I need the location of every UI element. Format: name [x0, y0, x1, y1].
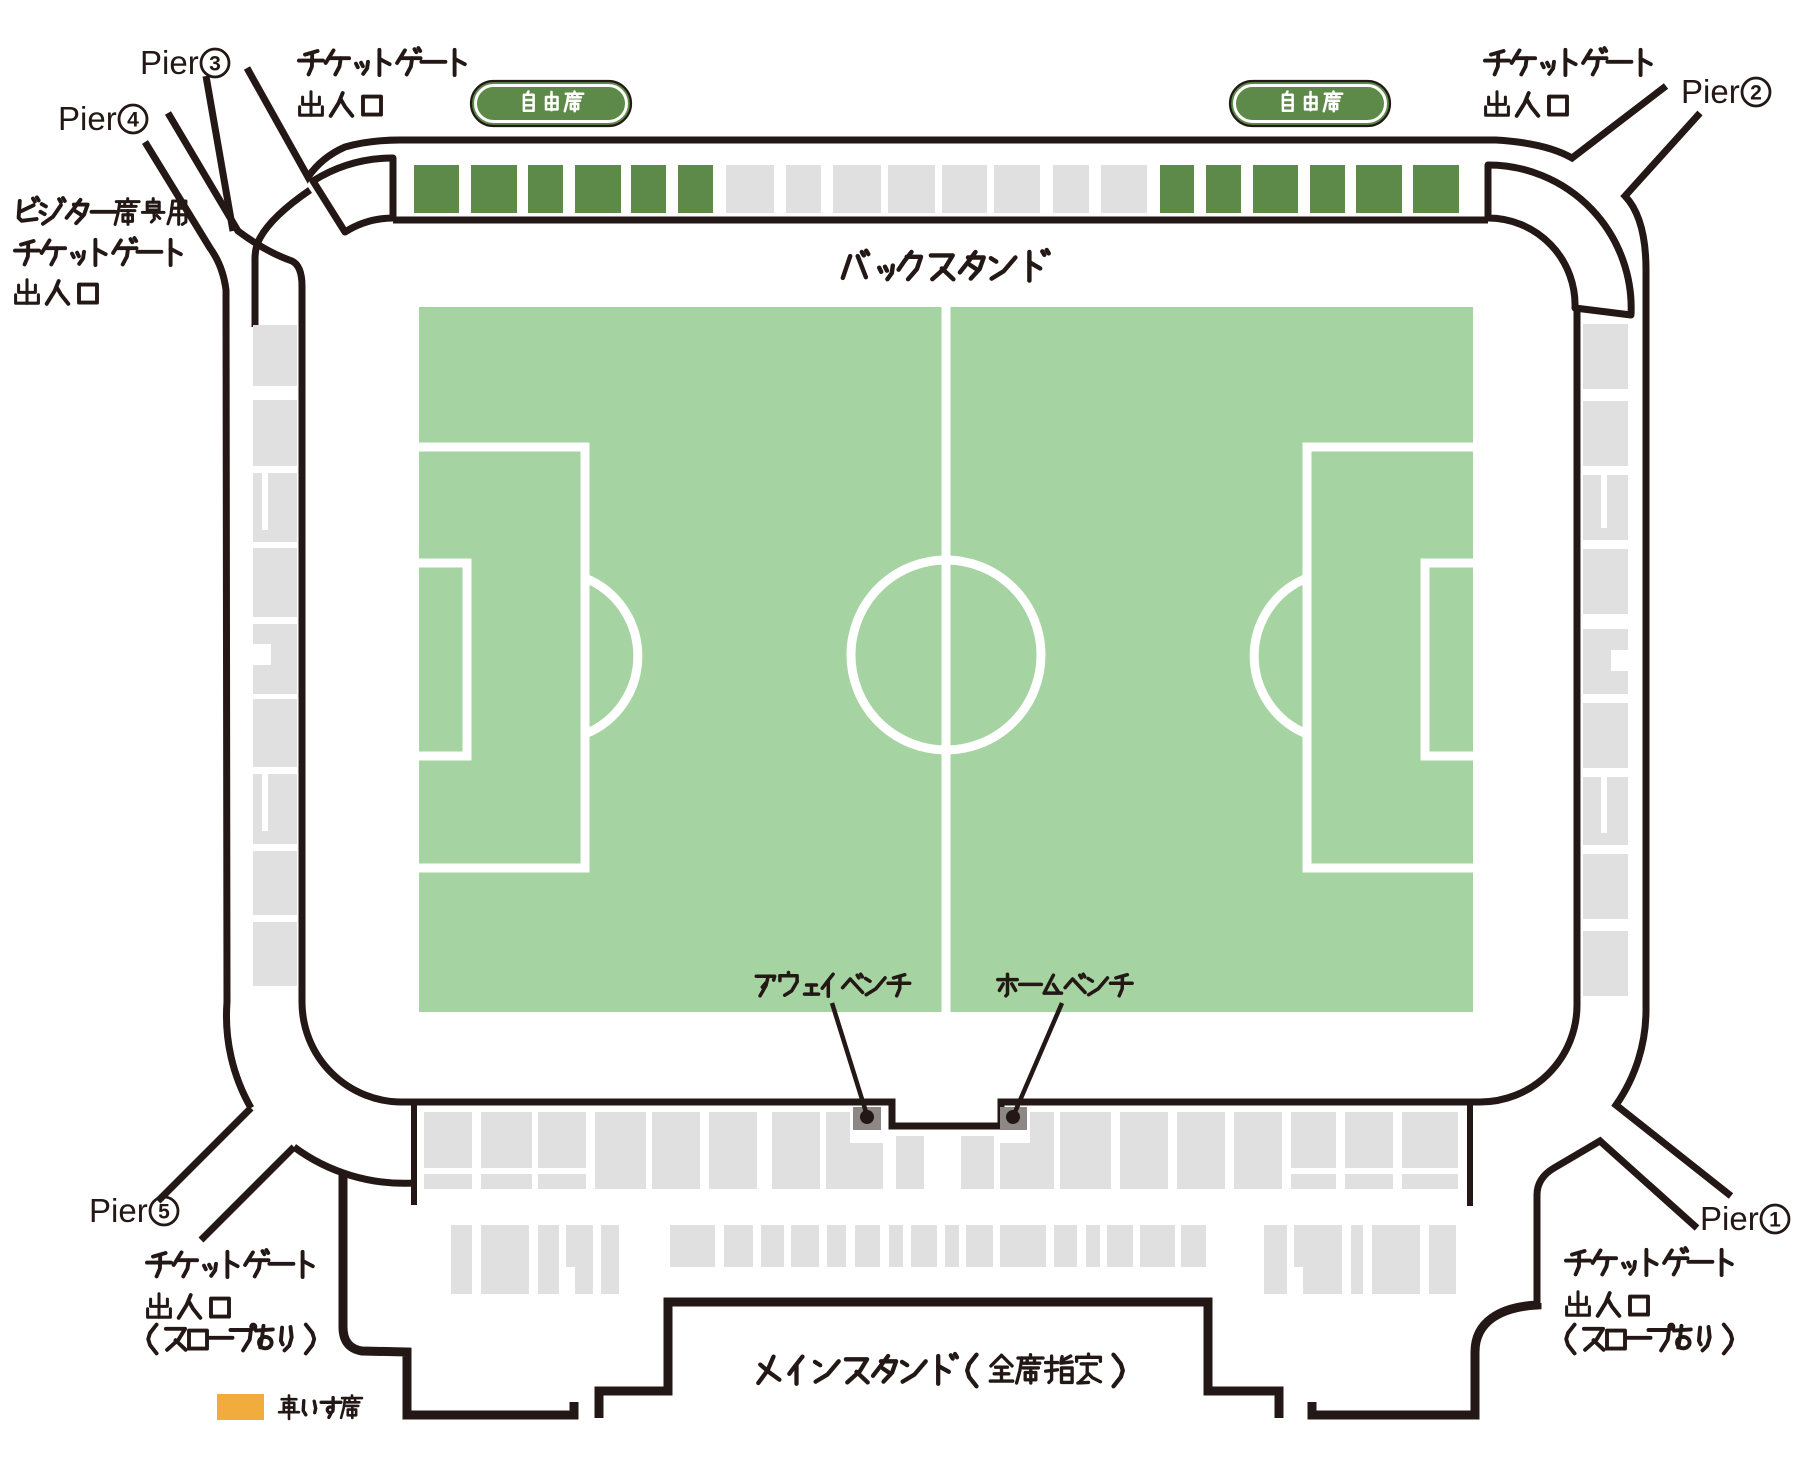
svg-text:Pier: Pier: [89, 1192, 148, 1229]
svg-text:Pier: Pier: [140, 44, 199, 81]
svg-text:3: 3: [209, 53, 221, 76]
svg-text:Pier: Pier: [58, 100, 117, 137]
svg-text:1: 1: [1769, 1209, 1781, 1232]
svg-text:Pier: Pier: [1681, 73, 1740, 110]
svg-text:5: 5: [158, 1201, 170, 1224]
svg-text:4: 4: [127, 109, 139, 132]
svg-text:2: 2: [1750, 82, 1762, 105]
svg-text:Pier: Pier: [1700, 1200, 1759, 1237]
